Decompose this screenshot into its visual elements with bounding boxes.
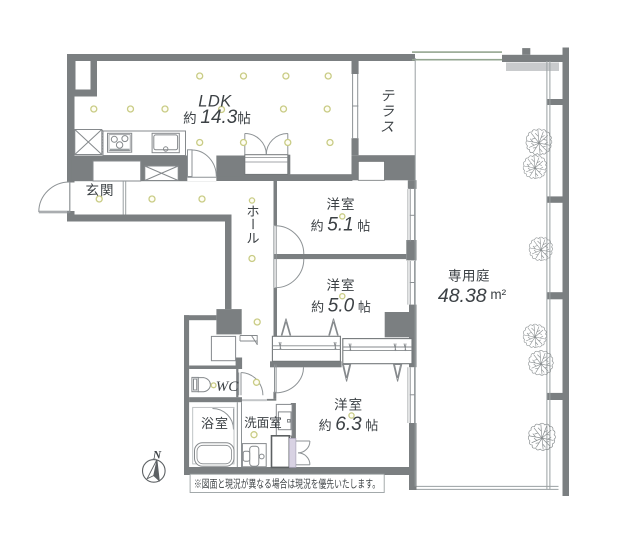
svg-text:洋室: 洋室	[327, 277, 356, 293]
svg-text:ー: ー	[245, 217, 260, 230]
svg-text:ス: ス	[380, 119, 394, 135]
svg-text:N: N	[152, 450, 162, 462]
svg-text:洗面室: 洗面室	[244, 415, 282, 430]
svg-text:ル: ル	[246, 231, 259, 246]
svg-text:ラ: ラ	[380, 103, 394, 119]
svg-text:洋室: 洋室	[334, 397, 363, 413]
svg-text:※図面と現況が異なる場合は現況を優先いたします。: ※図面と現況が異なる場合は現況を優先いたします。	[194, 477, 380, 491]
svg-text:玄関: 玄関	[86, 182, 115, 198]
svg-text:テ: テ	[380, 88, 395, 104]
svg-text:WC: WC	[216, 379, 239, 395]
svg-text:浴室: 浴室	[201, 416, 229, 431]
svg-text:約 5.1 帖: 約 5.1 帖	[311, 215, 371, 236]
svg-text:約 14.3帖: 約 14.3帖	[183, 107, 251, 128]
svg-text:洋室: 洋室	[327, 196, 356, 212]
svg-text:専用庭: 専用庭	[448, 268, 490, 284]
svg-text:約 5.0 帖: 約 5.0 帖	[311, 296, 371, 317]
svg-text:約 6.3 帖: 約 6.3 帖	[319, 414, 379, 435]
